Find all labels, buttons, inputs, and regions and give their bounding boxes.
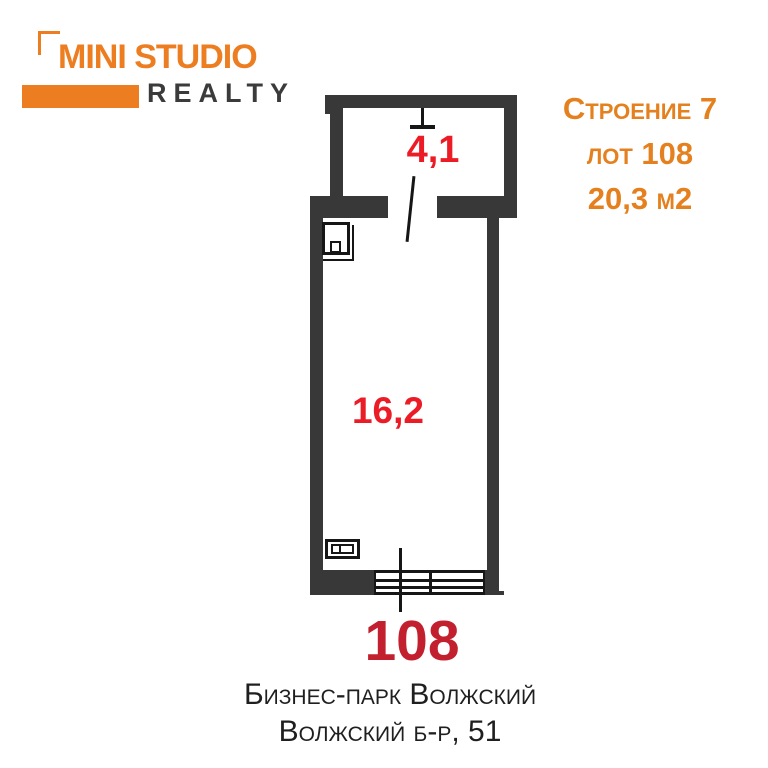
room-area-label-upper: 4,1 bbox=[383, 131, 483, 169]
logo-title: MINI STUDIO bbox=[58, 40, 257, 74]
listing-flyer: MINI STUDIO REALTY Строение 7 лот 108 20… bbox=[0, 0, 768, 768]
room-area-label-main: 16,2 bbox=[333, 392, 443, 429]
wall-bottom-right bbox=[485, 570, 499, 595]
logo-accent-bar bbox=[22, 85, 139, 108]
duct-shaft-edge bbox=[323, 259, 354, 261]
radiator-divider bbox=[339, 545, 341, 553]
wall-bottom-right-lip bbox=[499, 591, 504, 595]
address-line-2: Волжский б-р, 51 bbox=[190, 713, 590, 750]
wall-upper-room-top bbox=[330, 95, 517, 108]
window-icon bbox=[374, 570, 485, 595]
listing-building: Строение 7 bbox=[535, 86, 745, 131]
radiator-inner-icon bbox=[331, 544, 354, 554]
wall-main-room-right bbox=[487, 218, 499, 595]
window-axis-line bbox=[399, 548, 402, 612]
logo-subtitle: REALTY bbox=[147, 80, 295, 107]
wall-upper-room-left bbox=[330, 95, 343, 196]
wall-main-room-left bbox=[310, 196, 323, 595]
vent-tee-stem-icon bbox=[421, 108, 424, 126]
duct-shaft-inner-icon bbox=[330, 241, 341, 253]
wall-bottom-left bbox=[310, 570, 374, 595]
logo-corner-bracket-icon bbox=[38, 31, 60, 55]
listing-area: 20,3 м2 bbox=[535, 176, 745, 221]
lot-number: 108 bbox=[312, 613, 512, 670]
address-line-1: Бизнес-парк Волжский bbox=[190, 676, 590, 713]
listing-lot: лот 108 bbox=[535, 131, 745, 176]
duct-shaft-edge bbox=[352, 225, 354, 261]
address-block: Бизнес-парк Волжский Волжский б-р, 51 bbox=[190, 676, 590, 750]
listing-info: Строение 7 лот 108 20,3 м2 bbox=[535, 86, 745, 221]
